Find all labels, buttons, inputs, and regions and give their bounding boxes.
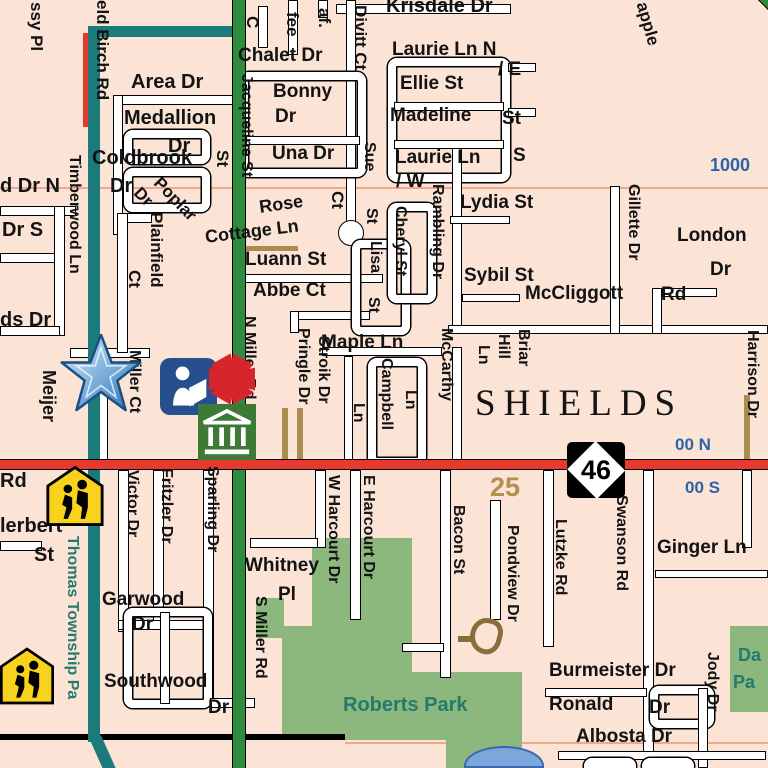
- map-label-s: S: [513, 146, 526, 165]
- map-label-burmeister-dr: Burmeister Dr: [549, 661, 676, 680]
- route-number: 46: [581, 455, 611, 486]
- map-label-una-dr: Una Dr: [272, 144, 334, 163]
- government-building-icon[interactable]: [198, 404, 256, 460]
- map-label-pl: Pl: [278, 585, 296, 604]
- map-label-st: St: [502, 109, 521, 128]
- map-label-rambling-dr: Rambling Dr: [429, 184, 445, 279]
- map-label-fritzler-dr: Fritzler Dr: [158, 468, 174, 544]
- map-label-mccliggott: McCliggott: [525, 284, 623, 303]
- map-label-coldbrook: Coldbrook: [92, 148, 192, 168]
- map-label-dr: Dr: [132, 615, 153, 634]
- map-label-swanson-rd: Swanson Rd: [613, 495, 629, 591]
- map-label-1000: 1000: [710, 156, 750, 174]
- map-label-medallion: Medallion: [124, 108, 216, 128]
- map-label-krisdale-dr: Krisdale Dr: [386, 0, 493, 16]
- map-label-dr: Dr: [275, 107, 296, 126]
- map-label-ct: Ct: [329, 191, 346, 209]
- school-crossing-icon: [0, 646, 54, 706]
- map-label-00-n: 00 N: [675, 436, 711, 453]
- map-label-pringle-dr: Pringle Dr: [295, 328, 311, 404]
- map-label-st: St: [363, 208, 379, 224]
- map-label-25: 25: [490, 474, 520, 501]
- map-label-st: St: [365, 297, 381, 313]
- map-label-w-harcourt-dr: W Harcourt Dr: [325, 475, 341, 583]
- map-label-ginger-ln: Ginger Ln: [657, 538, 747, 557]
- map-label-s-miller-rd: S Miller Rd: [252, 596, 268, 679]
- map-label-ds-dr: ds Dr: [0, 310, 51, 330]
- map-label-ct: Ct: [126, 270, 143, 288]
- map-label-da: Da: [738, 646, 761, 664]
- map-label-plainfield: Plainfield: [148, 212, 165, 288]
- map-label-ln: Ln: [402, 390, 418, 410]
- map-label-lydia-st: Lydia St: [460, 193, 533, 212]
- map-label-fee: fee: [284, 12, 301, 37]
- red-asterisk-icon[interactable]: [205, 350, 259, 408]
- map-label-eld-birch-rd: eld Birch Rd: [94, 0, 111, 100]
- map-label-garwood: Garwood: [102, 590, 184, 609]
- map-label-rd: Rd: [661, 285, 686, 304]
- school-crossing-icon: [46, 466, 104, 526]
- map-label-luann-st: Luann St: [245, 250, 326, 269]
- map-label-ln: Ln: [350, 403, 366, 423]
- map-label-shields: SHIELDS: [475, 385, 683, 422]
- map-label-rose: Rose: [258, 192, 304, 216]
- map-label-dr: Dr: [710, 260, 731, 279]
- map-label-thomas-township-pa: Thomas Township Pa: [64, 536, 80, 699]
- map-label-area-dr: Area Dr: [131, 72, 203, 92]
- map-label-lisa: Lisa: [367, 241, 383, 273]
- map-label-jacqueline-st: Jacqueline St: [238, 74, 254, 177]
- map-label--e: / E: [498, 60, 521, 79]
- map-label-sparling-dr: Sparling Dr: [204, 466, 220, 552]
- map-label-dr: Dr: [208, 698, 229, 717]
- map-label-dr: Dr: [649, 698, 670, 717]
- map-label-pondview-dr: Pondview Dr: [504, 525, 520, 622]
- map-label-c: C: [244, 16, 261, 28]
- map-label-divitt-ct: Divitt Ct: [352, 5, 369, 70]
- map-label-rd: Rd: [0, 471, 27, 491]
- map-label-dr: Dr: [110, 176, 132, 196]
- map-label--w: / W: [396, 172, 425, 191]
- map-label-lutzke-rd: Lutzke Rd: [552, 519, 568, 595]
- map-label-bonny: Bonny: [273, 82, 332, 101]
- map-label-madeline: Madeline: [390, 106, 471, 125]
- map-label-roberts-park: Roberts Park: [343, 695, 468, 715]
- map-label-chalet-dr: Chalet Dr: [238, 46, 322, 65]
- map-label-albosta-dr: Albosta Dr: [576, 727, 672, 746]
- map-label-southwood: Southwood: [104, 672, 207, 691]
- map-label-af-: af.: [316, 8, 333, 28]
- map-label-timberwood-ln: Timberwood Ln: [66, 155, 82, 274]
- map-label-dr-s: Dr S: [2, 220, 43, 240]
- map-label-ln: Ln: [475, 345, 491, 365]
- map-label-cottage-ln: Cottage Ln: [204, 217, 299, 246]
- map-label-laurie-ln-n: Laurie Ln N: [392, 40, 497, 59]
- map-label-victor-dr: Victor Dr: [124, 470, 140, 537]
- map-label-gillette-dr: Gillette Dr: [625, 184, 641, 260]
- map-label-hill: Hill: [495, 334, 511, 359]
- map-label-d-dr-n: d Dr N: [0, 176, 60, 196]
- route-46-marker: 46: [567, 442, 625, 498]
- street-map: ssy Pleld Birch RdArea DrMedallionDrCold…: [0, 0, 768, 768]
- map-label-maple-ln: Maple Ln: [321, 333, 403, 352]
- map-label-sybil-st: Sybil St: [464, 266, 534, 285]
- map-label-whitney: Whitney: [245, 556, 319, 575]
- map-label-cheryl-st: Cheryl St: [392, 206, 408, 276]
- map-label-pa: Pa: [733, 673, 755, 691]
- map-label-st: St: [34, 545, 54, 565]
- map-label-e-harcourt-dr: E Harcourt Dr: [360, 475, 376, 579]
- map-label-campbell: Campbell: [378, 358, 394, 430]
- meijer-star-icon[interactable]: [60, 334, 142, 414]
- map-label-abbe-ct: Abbe Ct: [253, 281, 326, 300]
- map-label-laurie-ln: Laurie Ln: [395, 148, 481, 167]
- map-label-briar: Briar: [515, 329, 531, 366]
- map-label-bacon-st: Bacon St: [450, 505, 466, 574]
- map-label-ssy-pl: ssy Pl: [28, 2, 45, 51]
- map-label-sue: Sue: [361, 142, 377, 171]
- map-label-ronald: Ronald: [549, 695, 613, 714]
- map-label-00-s: 00 S: [685, 479, 720, 496]
- map-label-apple: apple: [634, 0, 663, 47]
- map-label-stroik-dr: Stroik Dr: [315, 336, 331, 404]
- map-label-mccarthy: McCarthy: [438, 328, 454, 401]
- map-label-meijer: Meijer: [40, 370, 58, 422]
- map-label-london: London: [677, 226, 747, 245]
- map-label-ellie-st: Ellie St: [400, 74, 463, 93]
- map-label-st: St: [214, 150, 231, 167]
- map-label-jody-dr: Jody Dr: [704, 652, 720, 712]
- map-label-harrison-dr: Harrison Dr: [744, 330, 760, 418]
